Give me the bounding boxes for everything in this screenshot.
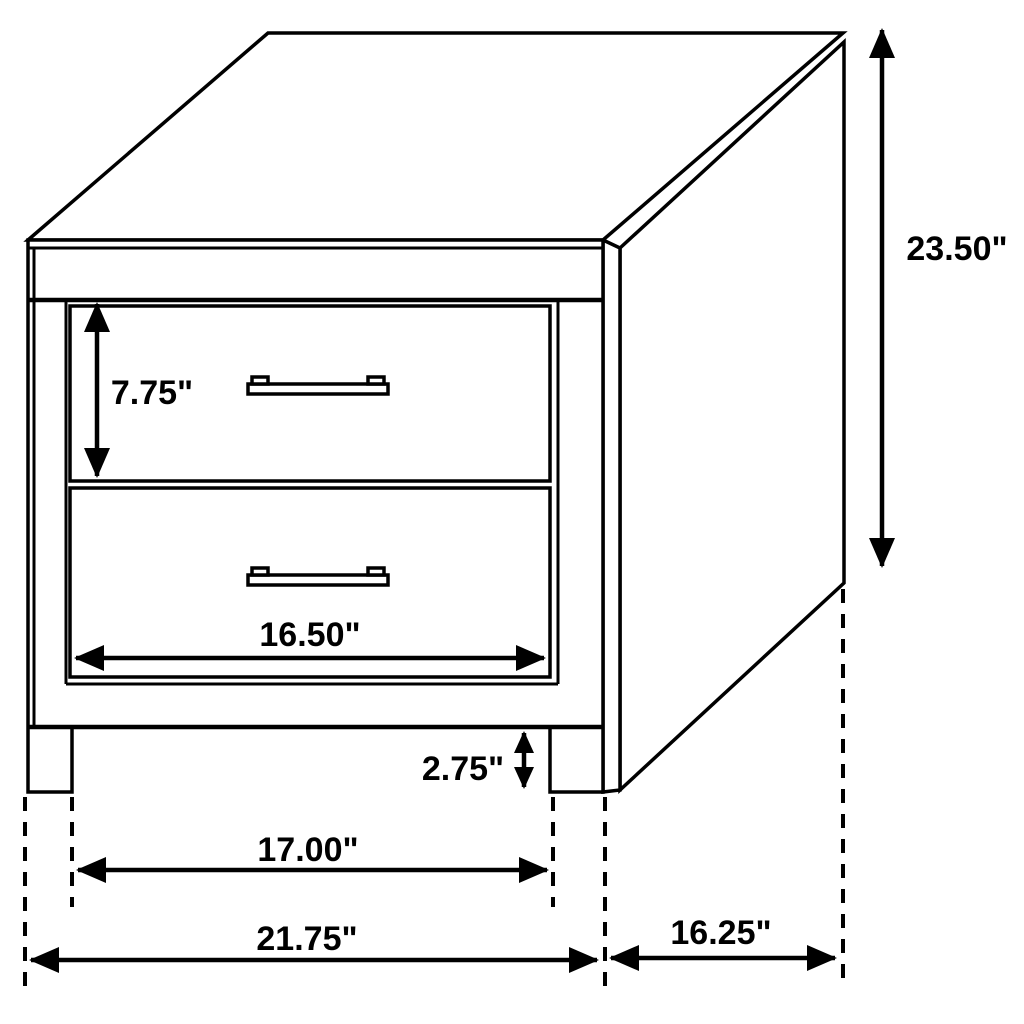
nightstand-drawing [28,33,844,792]
dimension-label-total-depth: 16.25" [670,914,771,952]
dimension-label-leg-clearance: 2.75" [422,750,504,788]
dimension-label-top-drawer-height: 7.75" [111,374,193,412]
handle-standoff-right [368,377,384,384]
dimension-total-height: 23.50" [882,30,1008,566]
dimension-leg-clearance: 2.75" [422,733,524,788]
dimension-inner-leg-width: 17.00" [78,831,547,870]
handle-standoff-left [252,377,268,384]
handle-standoff-left [252,568,268,575]
dimension-label-total-height: 23.50" [906,230,1007,268]
dimension-total-width: 21.75" [31,920,597,960]
dimension-diagram-canvas: 23.50" 7.75" 16.50" 2.75" 17.00" 21.75" … [0,0,1024,1024]
front-right-corner-edge [603,240,620,792]
dimension-label-inner-leg-width: 17.00" [257,831,358,869]
dimension-label-total-width: 21.75" [256,920,357,958]
dimension-label-drawer-width: 16.50" [259,616,360,654]
handle-standoff-right [368,568,384,575]
nightstand-diagram-svg: 23.50" 7.75" 16.50" 2.75" 17.00" 21.75" … [0,0,1024,1024]
dimension-total-depth: 16.25" [611,914,835,958]
